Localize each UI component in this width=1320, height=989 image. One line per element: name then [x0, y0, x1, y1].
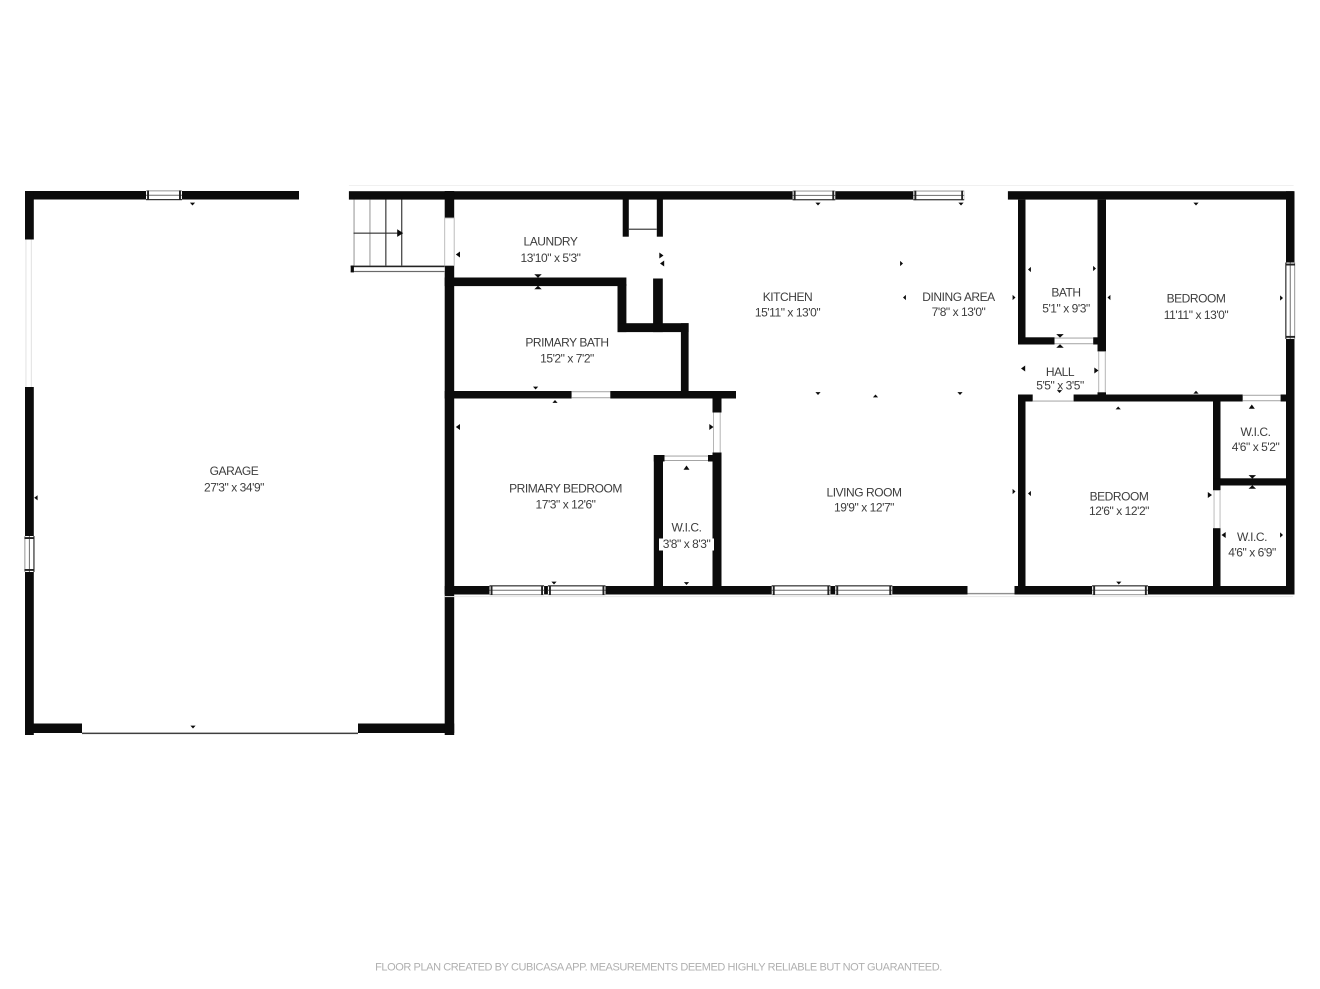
svg-text:15'2" x 7'2": 15'2" x 7'2": [540, 352, 594, 366]
svg-text:12'6" x 12'2": 12'6" x 12'2": [1089, 504, 1149, 518]
svg-text:4'6" x 6'9": 4'6" x 6'9": [1228, 546, 1276, 560]
svg-text:HALL: HALL: [1046, 365, 1075, 379]
svg-text:3'8" x 8'3": 3'8" x 8'3": [663, 537, 711, 551]
svg-text:DINING AREA: DINING AREA: [922, 290, 995, 304]
svg-text:27'3" x 34'9": 27'3" x 34'9": [204, 481, 264, 495]
svg-text:KITCHEN: KITCHEN: [763, 290, 813, 304]
svg-text:BEDROOM: BEDROOM: [1090, 489, 1149, 503]
svg-text:4'6" x 5'2": 4'6" x 5'2": [1232, 440, 1280, 454]
svg-text:BEDROOM: BEDROOM: [1167, 292, 1226, 306]
svg-text:11'11" x 13'0": 11'11" x 13'0": [1164, 308, 1229, 322]
svg-text:19'9" x 12'7": 19'9" x 12'7": [834, 501, 894, 515]
svg-text:W.I.C.: W.I.C.: [672, 521, 702, 535]
svg-text:15'11" x 13'0": 15'11" x 13'0": [755, 306, 820, 320]
svg-text:PRIMARY BATH: PRIMARY BATH: [525, 336, 608, 350]
svg-text:FLOOR PLAN CREATED BY CUBICASA: FLOOR PLAN CREATED BY CUBICASA APP. MEAS…: [375, 962, 942, 974]
svg-text:17'3" x 12'6": 17'3" x 12'6": [536, 498, 596, 512]
svg-text:7'8" x 13'0": 7'8" x 13'0": [932, 305, 986, 319]
svg-text:13'10" x 5'3": 13'10" x 5'3": [521, 251, 581, 265]
svg-text:LIVING ROOM: LIVING ROOM: [826, 486, 902, 500]
svg-text:PRIMARY BEDROOM: PRIMARY BEDROOM: [509, 481, 622, 495]
svg-text:W.I.C.: W.I.C.: [1237, 530, 1267, 544]
svg-text:5'1" x 9'3": 5'1" x 9'3": [1042, 301, 1090, 315]
svg-text:GARAGE: GARAGE: [210, 464, 259, 478]
svg-text:BATH: BATH: [1051, 286, 1080, 300]
svg-text:LAUNDRY: LAUNDRY: [524, 235, 578, 249]
svg-text:5'5" x 3'5": 5'5" x 3'5": [1036, 379, 1084, 393]
svg-text:W.I.C.: W.I.C.: [1241, 425, 1271, 439]
